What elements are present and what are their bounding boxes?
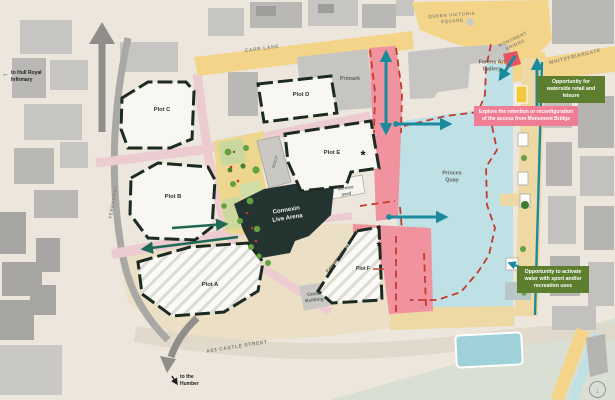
annotation-waterside-retail: Opportunity for waterside retail and lei… (537, 76, 605, 103)
pier (500, 193, 522, 206)
square-fountain (466, 18, 474, 26)
direction-hull-royal-infirmary: ← to Hull Royal Infirmary (2, 70, 54, 83)
annotation-activate-water: Opportunity to activate water with sport… (517, 266, 589, 293)
download-arrow-icon: ↓ (595, 385, 600, 395)
direction-text: to the Humber (180, 374, 206, 387)
download-button[interactable]: ↓ (589, 381, 606, 398)
bus-stop (516, 86, 527, 103)
south-pool (455, 332, 523, 367)
plot-c-outline (121, 82, 194, 148)
north-arrow (99, 40, 106, 132)
direction-humber: to the Humber (180, 374, 214, 387)
annotation-monument-access: Explore the retention or reconfiguration… (474, 106, 578, 126)
plot-d-outline (258, 76, 337, 122)
masterplan-map: CARR LANE QUEEN VICTORIA SQUARE MONUMENT… (0, 0, 615, 400)
left-arrow-icon: ← (2, 70, 9, 83)
direction-text: to Hull Royal Infirmary (11, 70, 51, 83)
map-canvas (0, 0, 615, 400)
